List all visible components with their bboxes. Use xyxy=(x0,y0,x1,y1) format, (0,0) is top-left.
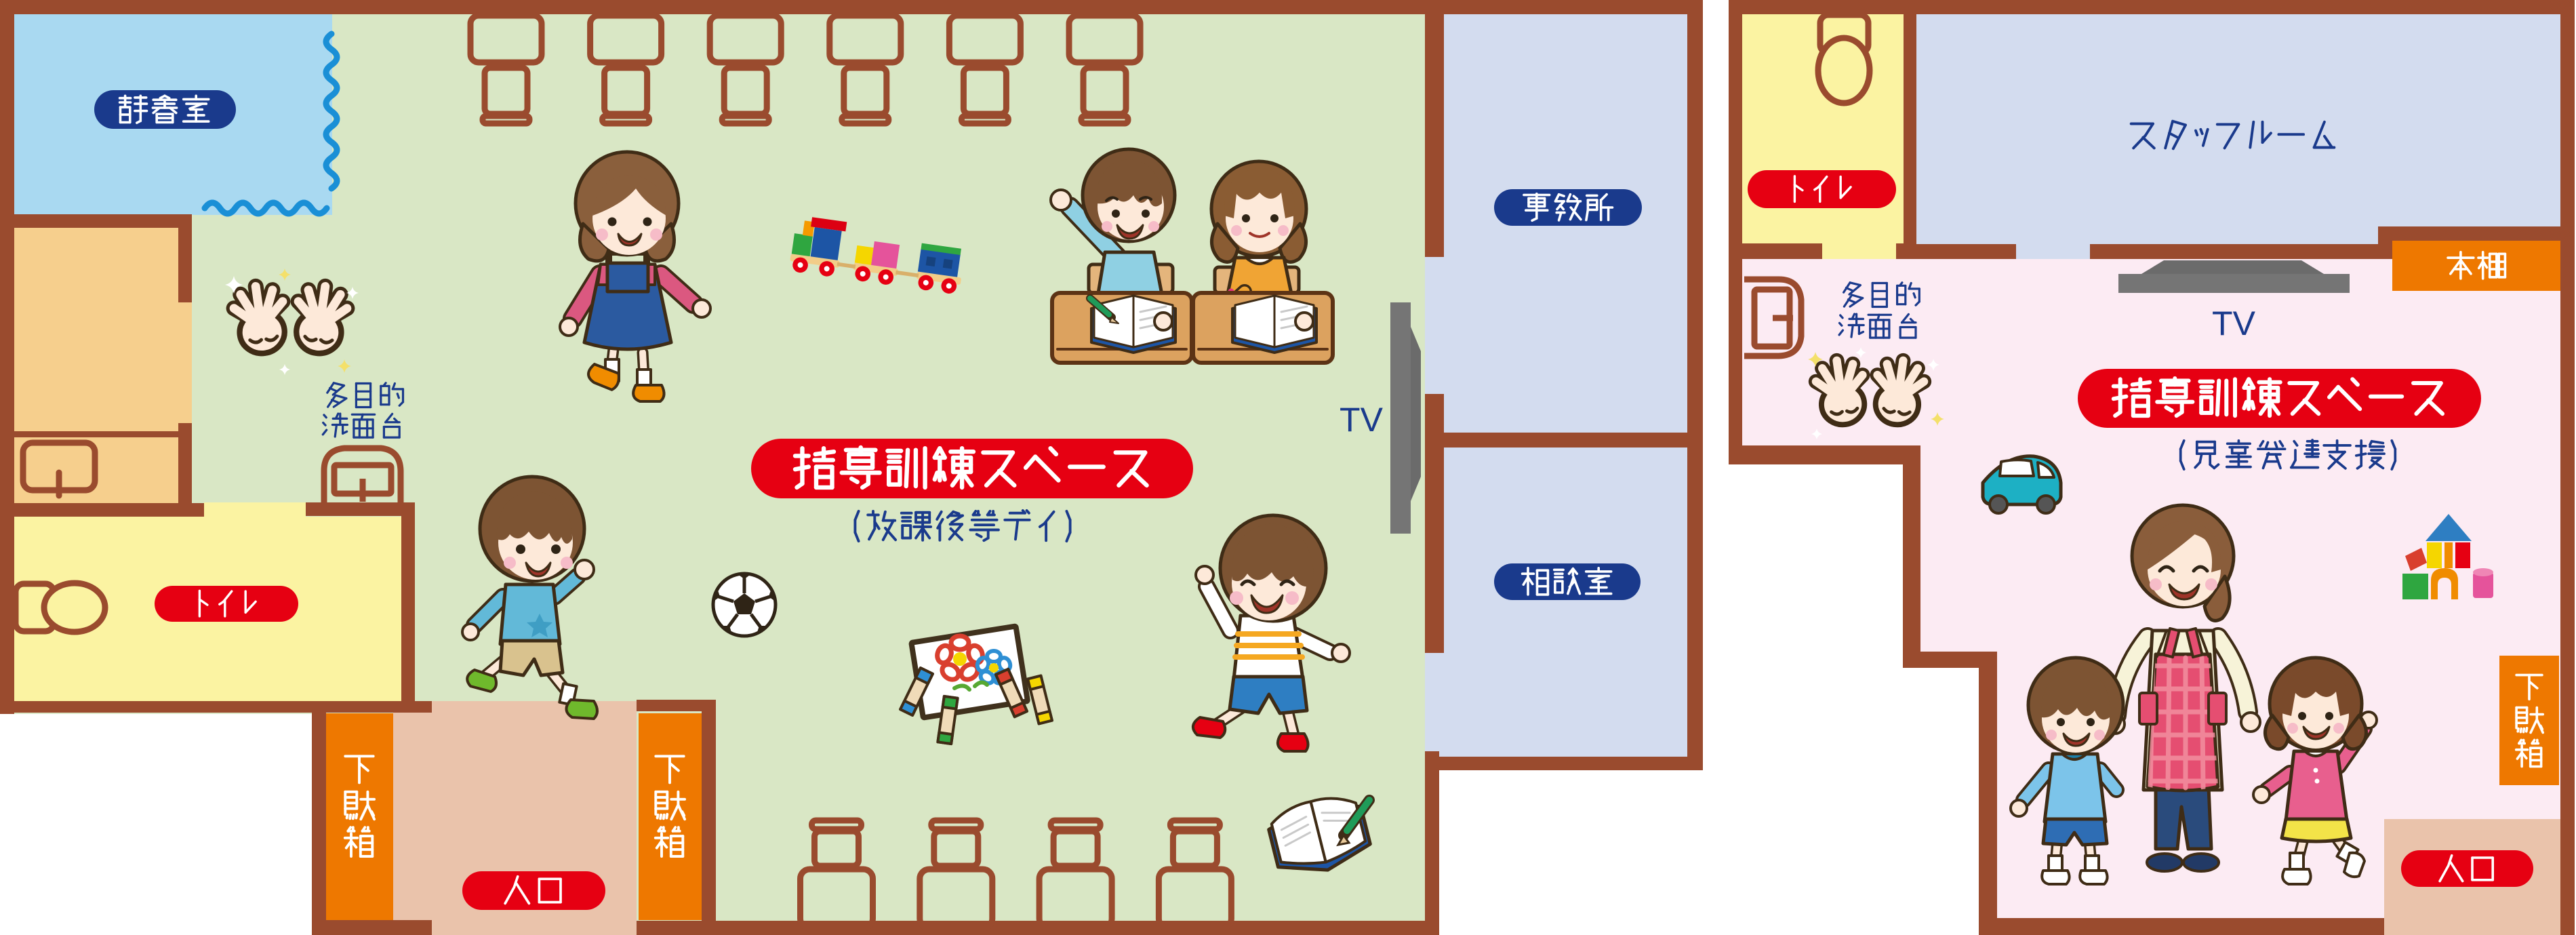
svg-text:TV: TV xyxy=(1340,401,1384,439)
svg-text:TV: TV xyxy=(2212,304,2256,342)
